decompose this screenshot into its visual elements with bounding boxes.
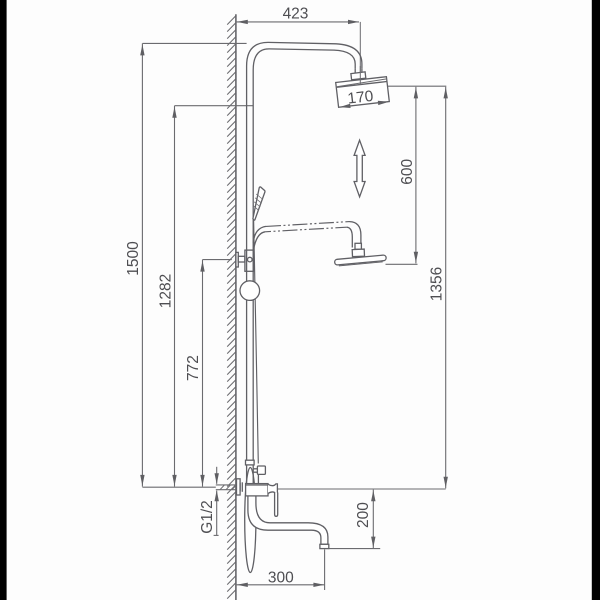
svg-text:600: 600 bbox=[399, 158, 416, 184]
svg-text:423: 423 bbox=[283, 5, 309, 22]
svg-text:1282: 1282 bbox=[157, 274, 174, 308]
svg-text:1356: 1356 bbox=[429, 267, 446, 301]
svg-text:772: 772 bbox=[185, 355, 202, 381]
svg-text:170: 170 bbox=[347, 88, 375, 108]
svg-text:1500: 1500 bbox=[125, 241, 142, 276]
svg-text:300: 300 bbox=[268, 569, 294, 586]
svg-text:G1/2: G1/2 bbox=[199, 500, 216, 534]
svg-text:200: 200 bbox=[355, 502, 372, 528]
